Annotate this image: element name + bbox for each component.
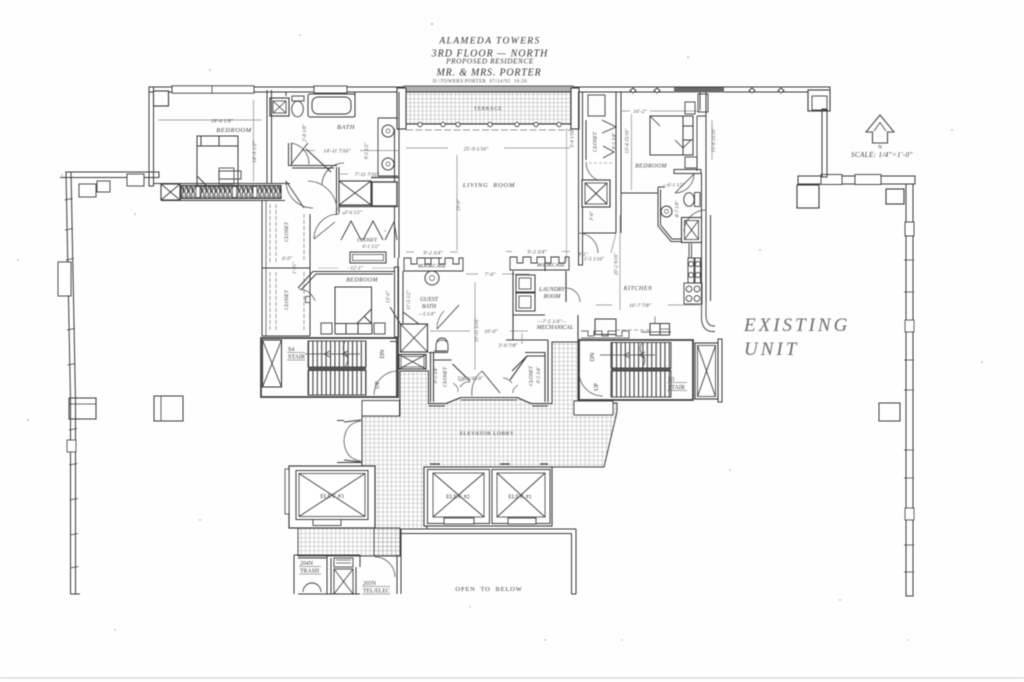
svg-text:8′-5 3/4″: 8′-5 3/4″ xyxy=(537,366,542,384)
svg-text:13′-0″: 13′-0″ xyxy=(387,290,392,303)
svg-text:EXISTING: EXISTING xyxy=(743,315,850,336)
svg-text:−12′-1″: −12′-1″ xyxy=(347,267,364,272)
svg-text:LAUNDRY: LAUNDRY xyxy=(538,287,565,293)
svg-text:—7′-5 1/4″—: —7′-5 1/4″— xyxy=(536,318,566,325)
svg-text:CLOSET: CLOSET xyxy=(357,238,378,244)
svg-text:CLOSET: CLOSET xyxy=(284,221,290,242)
svg-text:MECHANICAL: MECHANICAL xyxy=(536,325,573,331)
svg-text:203N: 203N xyxy=(363,581,377,587)
svg-text:10′-0″: 10′-0″ xyxy=(484,329,498,335)
svg-text:DN: DN xyxy=(590,352,596,361)
svg-text:CLOSET: CLOSET xyxy=(443,366,449,387)
svg-text:19′-0″: 19′-0″ xyxy=(457,198,462,211)
svg-text:S3: S3 xyxy=(668,377,674,383)
svg-text:D:\TOWERS\PORTER 07/14/92 16: D:\TOWERS\PORTER 07/14/92 16:26 xyxy=(433,80,528,85)
svg-text:14′-3 1/2″: 14′-3 1/2″ xyxy=(251,140,258,163)
svg-text:GUEST: GUEST xyxy=(420,297,439,303)
svg-text:BEDROOM: BEDROOM xyxy=(635,164,667,170)
svg-text:ELEVATOR LOBBY: ELEVATOR LOBBY xyxy=(460,431,515,437)
svg-text:BOOKCASE: BOOKCASE xyxy=(418,264,447,270)
svg-text:9′-2 3/4″: 9′-2 3/4″ xyxy=(527,249,547,256)
svg-text:8′-5 3/4″: 8′-5 3/4″ xyxy=(613,132,618,150)
svg-text:BOOKCASE: BOOKCASE xyxy=(537,263,566,269)
svg-text:—5 1/4″: —5 1/4″ xyxy=(418,313,437,318)
svg-text:DN: DN xyxy=(380,349,386,358)
svg-text:1′-11″: 1′-11″ xyxy=(293,261,298,274)
svg-text:4′-1 1/2″: 4′-1 1/2″ xyxy=(362,245,380,250)
svg-text:14′-11 7/16″: 14′-11 7/16″ xyxy=(323,148,351,155)
svg-text:9′-5 1/2″: 9′-5 1/2″ xyxy=(365,142,370,160)
svg-text:—6′-1 1/2″: —6′-1 1/2″ xyxy=(662,184,686,189)
svg-text:STAIR: STAIR xyxy=(288,355,305,361)
svg-text:ELEV. #1: ELEV. #1 xyxy=(508,495,532,501)
svg-text:3′-8 1/16″: 3′-8 1/16″ xyxy=(571,127,576,147)
svg-text:CLOSET: CLOSET xyxy=(529,365,535,386)
svg-text:OPEN TO BELOW: OPEN TO BELOW xyxy=(455,586,522,593)
svg-text:16′-7 7/8″: 16′-7 7/8″ xyxy=(629,303,652,309)
svg-text:BATH: BATH xyxy=(337,124,355,131)
svg-text:S4: S4 xyxy=(288,347,294,353)
svg-text:KITCHEN: KITCHEN xyxy=(623,286,653,292)
svg-text:8′-5 3/4″: 8′-5 3/4″ xyxy=(434,366,439,384)
svg-text:CLOSET: CLOSET xyxy=(284,289,290,310)
svg-text:UNIT: UNIT xyxy=(744,339,799,360)
svg-text:15′-6 15/16″: 15′-6 15/16″ xyxy=(712,127,717,153)
svg-text:20′-2 9/16″: 20′-2 9/16″ xyxy=(615,252,620,275)
svg-text:6′-0″: 6′-0″ xyxy=(282,257,293,262)
svg-text:UP: UP xyxy=(594,383,600,391)
svg-text:TEL/ELEC: TEL/ELEC xyxy=(363,589,390,595)
svg-text:ROOM: ROOM xyxy=(543,294,562,300)
svg-text:16′-2″: 16′-2″ xyxy=(633,109,647,115)
svg-text:10′-11 5/16″: 10′-11 5/16″ xyxy=(475,317,480,343)
svg-text:BEDROOM: BEDROOM xyxy=(346,278,378,284)
svg-text:▵5′-: ▵5′- xyxy=(459,378,467,383)
svg-text:9′-2 3/4″: 9′-2 3/4″ xyxy=(423,250,443,257)
svg-text:SCALE: 1/4″=1′-0″: SCALE: 1/4″=1′-0″ xyxy=(851,151,913,159)
svg-text:204N: 204N xyxy=(300,561,314,567)
svg-text:13′-4 15/16″: 13′-4 15/16″ xyxy=(626,128,631,154)
svg-text:8′-1″: 8′-1″ xyxy=(578,253,588,258)
svg-text:11′-5 1/2″: 11′-5 1/2″ xyxy=(407,289,412,310)
svg-text:▵3′-6 1/2″: ▵3′-6 1/2″ xyxy=(342,211,363,216)
svg-text:LIVING ROOM: LIVING ROOM xyxy=(462,182,516,189)
svg-text:N: N xyxy=(878,145,882,151)
svg-text:7′-0″: 7′-0″ xyxy=(485,272,497,278)
svg-text:1/4″: 1/4″ xyxy=(475,377,484,382)
svg-text:BATH: BATH xyxy=(422,304,437,310)
svg-text:3′-0 7/8″: 3′-0 7/8″ xyxy=(497,343,518,349)
svg-text:ALAMEDA TOWERS: ALAMEDA TOWERS xyxy=(438,37,540,47)
svg-text:STAIR: STAIR xyxy=(668,385,685,391)
svg-text:CLOSET: CLOSET xyxy=(593,131,599,152)
svg-text:18′-6 1/8″: 18′-6 1/8″ xyxy=(211,119,234,125)
svg-text:BEDROOM: BEDROOM xyxy=(216,127,252,134)
svg-text:ELEV. #3: ELEV. #3 xyxy=(320,494,344,500)
svg-text:MR. & MRS. PORTER: MR. & MRS. PORTER xyxy=(436,68,542,79)
svg-text:TERRACE: TERRACE xyxy=(474,106,503,112)
svg-text:TRASH: TRASH xyxy=(300,569,320,575)
svg-text:25′-9 1/16″: 25′-9 1/16″ xyxy=(464,147,489,153)
svg-text:3′-6″: 3′-6″ xyxy=(590,210,595,220)
svg-text:PROPOSED RESIDENCE: PROPOSED RESIDENCE xyxy=(445,58,534,66)
svg-text:ELEV. #2: ELEV. #2 xyxy=(446,495,470,501)
svg-text:1′-5 1/16″: 1′-5 1/16″ xyxy=(584,258,605,263)
svg-text:4′-7 1/8″: 4′-7 1/8″ xyxy=(676,200,681,218)
svg-text:2′-8 1/8″: 2′-8 1/8″ xyxy=(303,123,308,141)
